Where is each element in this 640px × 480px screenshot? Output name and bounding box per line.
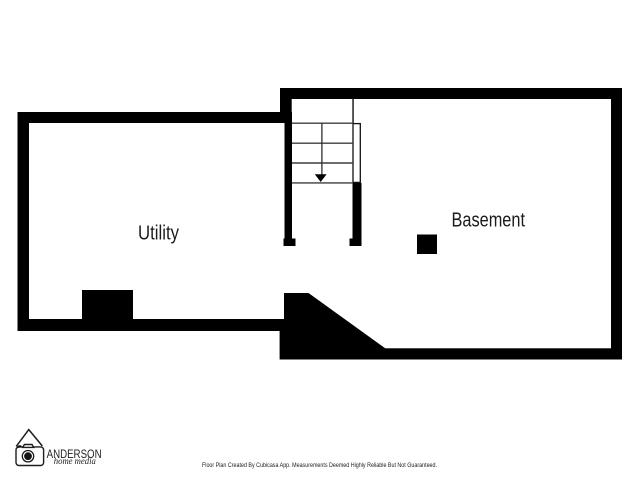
svg-text:Utility: Utility (138, 223, 179, 245)
svg-text:Basement: Basement (452, 209, 526, 231)
svg-text:home media: home media (54, 457, 96, 467)
svg-text:Floor Plan Created By Cubicasa: Floor Plan Created By Cubicasa App. Meas… (202, 462, 437, 469)
